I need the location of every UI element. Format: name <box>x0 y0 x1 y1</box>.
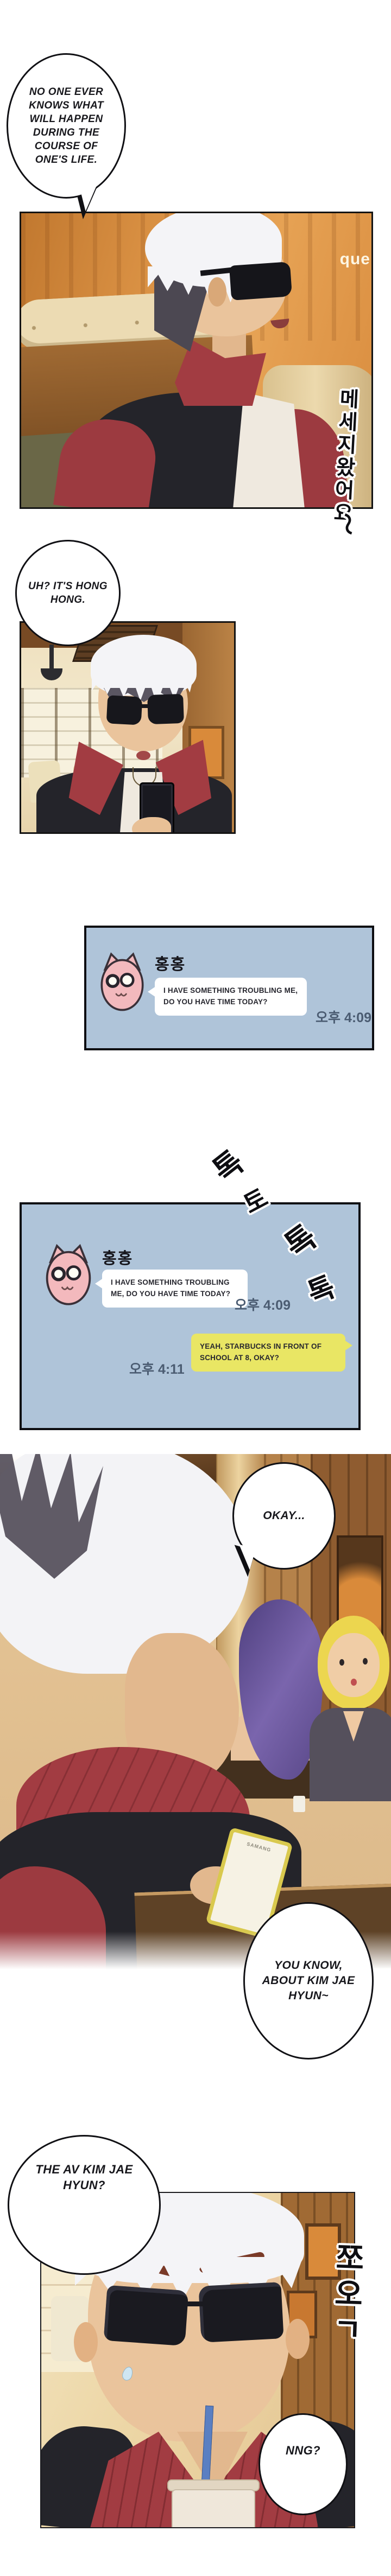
chat-sender-name: 홍홍 <box>102 1246 133 1268</box>
lamp-stem <box>49 645 54 669</box>
chat-incoming-message: I HAVE SOMETHING TROUBLING ME, DO YOU HA… <box>155 978 307 1016</box>
character-ear-left <box>74 2322 98 2362</box>
character-tee <box>233 392 305 509</box>
speech-bubble-the-av: THE AV KIM JAE HYUN? <box>8 2135 161 2275</box>
message-tail <box>95 1278 103 1289</box>
narration-text: NO ONE EVER KNOWS WHAT WILL HAPPEN DURIN… <box>8 71 124 181</box>
okay-text: OKAY... <box>257 1503 311 1529</box>
chat-incoming-message: I HAVE SOMETHING TROUBLING ME, DO YOU HA… <box>102 1270 248 1308</box>
sunglasses-bridge <box>184 2301 203 2306</box>
hong-text: UH? IT'S HONG HONG. <box>17 568 119 619</box>
chat-panel-first: 홍홍 I HAVE SOMETHING TROUBLING ME, DO YOU… <box>84 926 374 1050</box>
cat-avatar-icon <box>42 1244 94 1306</box>
sfx-tok-1: 톡 <box>203 1139 251 1191</box>
sunglasses-bridge <box>140 704 150 708</box>
speech-bubble-nng: NNG? <box>258 2413 348 2515</box>
chat-sender-name: 홍홍 <box>155 952 186 974</box>
drink-cup <box>172 2489 255 2528</box>
speech-bubble-narration: NO ONE EVER KNOWS WHAT WILL HAPPEN DURIN… <box>7 53 126 199</box>
sunglasses-icon <box>229 262 292 301</box>
coffee-cup <box>293 1796 305 1812</box>
character-ear-right <box>286 2319 310 2359</box>
blonde-mouth <box>351 1679 357 1686</box>
speech-bubble-you-know: YOU KNOW, ABOUT KIM JAE HYUN~ <box>243 1902 374 2059</box>
sfx-sip: 쪼오ㄱ <box>321 2241 370 2400</box>
sunglasses-right-lens <box>198 2282 283 2343</box>
chat-outgoing-message: YEAH, STARBUCKS IN FRONT OF SCHOOL AT 8,… <box>191 1334 345 1372</box>
wall-sign-text: que <box>340 250 370 269</box>
character-mouth <box>136 751 150 760</box>
message-tail-right <box>344 1340 352 1351</box>
character-ear <box>208 277 226 307</box>
woman-blonde-face <box>327 1633 380 1697</box>
sunglasses-left-lens <box>104 2285 189 2346</box>
chat-timestamp-outgoing: 오후 4:11 <box>129 1359 185 1378</box>
message-tail <box>148 986 156 997</box>
cat-avatar-icon <box>97 952 147 1012</box>
chat-timestamp-incoming: 오후 4:09 <box>235 1295 291 1314</box>
blonde-eye-right <box>363 1658 368 1665</box>
nng-text: NNG? <box>280 2443 326 2485</box>
panel-cafe-side-view: que <box>20 212 373 509</box>
panel-cafe-front-view <box>20 621 236 834</box>
blonde-eye-left <box>339 1659 344 1666</box>
chat-timestamp: 오후 4:09 <box>316 1007 371 1026</box>
phone-brand-text: SAMANG <box>246 1841 272 1853</box>
squiggle-mark: 〜 <box>331 510 367 538</box>
comic-page: que 메세지왔어요 〜 NO ONE EVER KNOWS WHAT WILL… <box>0 0 391 2576</box>
sunglasses-left-lens <box>106 695 143 725</box>
speech-bubble-hong: UH? IT'S HONG HONG. <box>15 540 121 646</box>
you-know-text: YOU KNOW, ABOUT KIM JAE HYUN~ <box>245 1942 372 2019</box>
the-av-text: THE AV KIM JAE HYUN? <box>9 2137 159 2193</box>
sunglasses-right-lens <box>147 694 184 724</box>
